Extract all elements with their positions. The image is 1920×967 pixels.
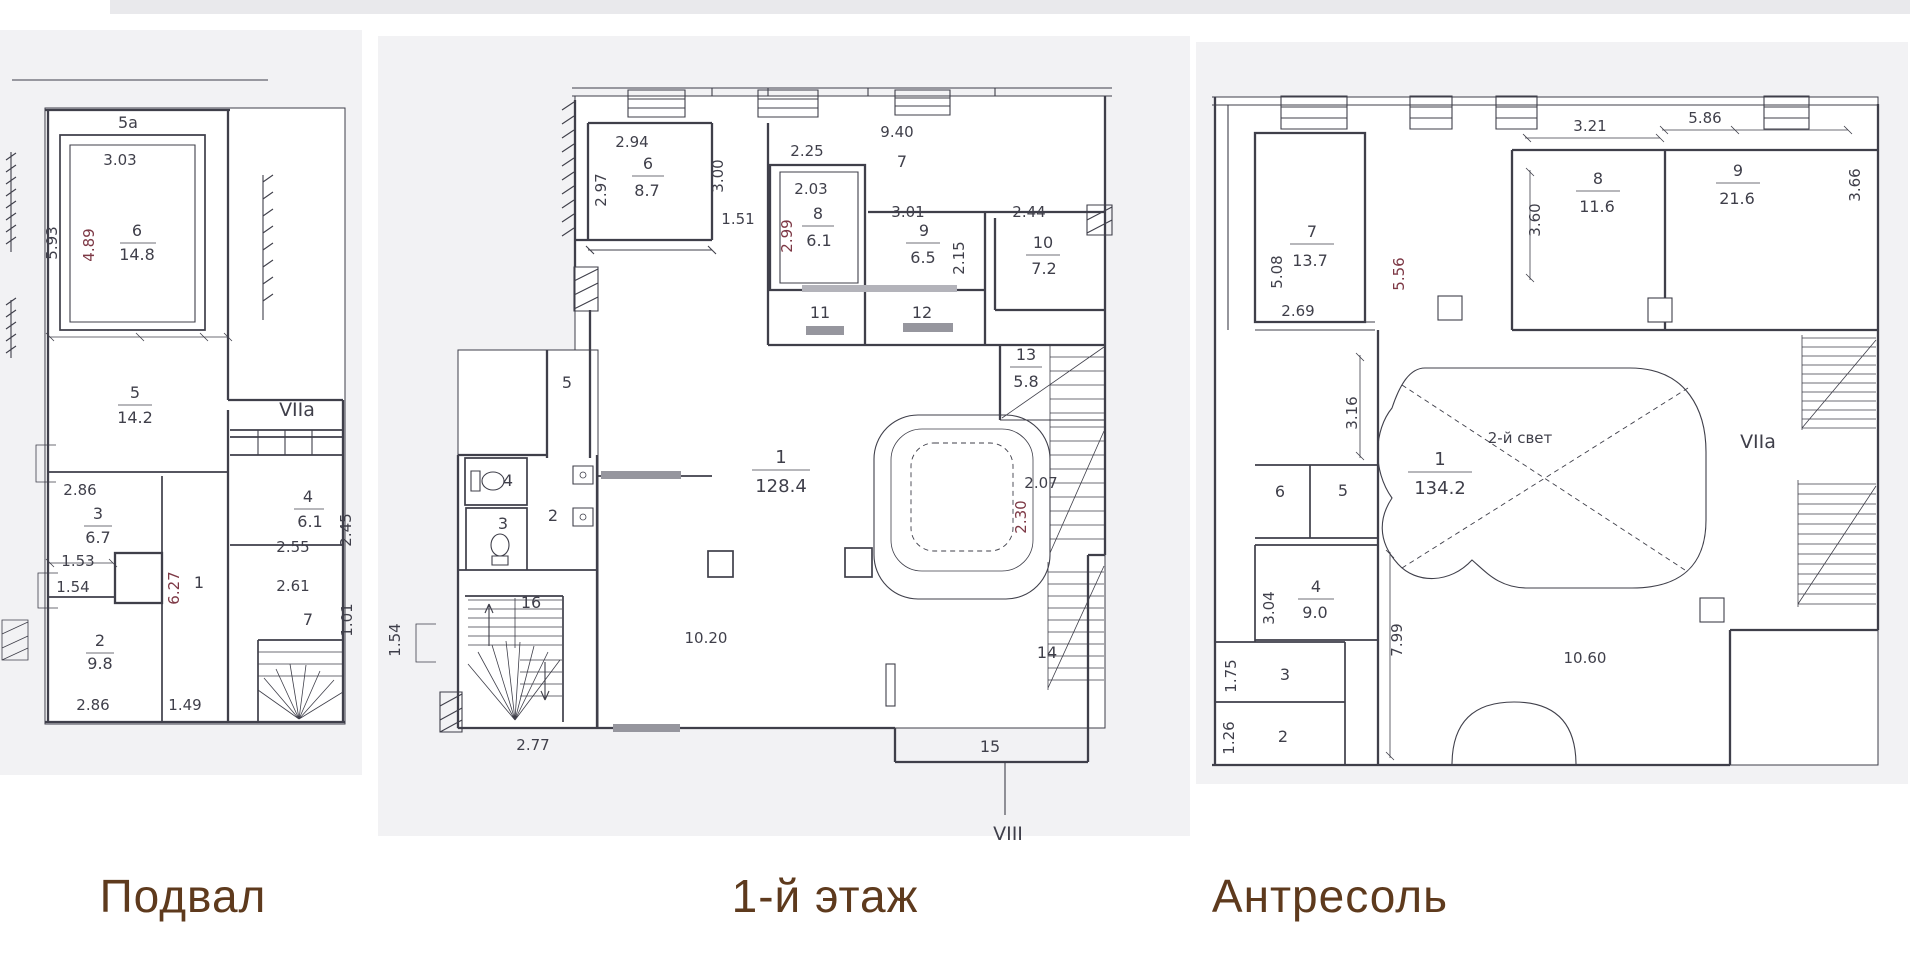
floor1-dim-151: 1.51 xyxy=(721,210,754,228)
floor1-room-2-number: 2 xyxy=(548,506,558,525)
basement-dim-627: 6.27 xyxy=(165,571,183,604)
mezzanine-dim-586: 5.86 xyxy=(1688,109,1721,127)
mezzanine-dim-508: 5.08 xyxy=(1268,255,1286,288)
floor1-room-15-number: 15 xyxy=(980,737,1000,756)
floor1-room-11-number: 11 xyxy=(810,303,830,322)
basement-dim-101: 1.01 xyxy=(338,603,356,636)
mezzanine-dim-360: 3.60 xyxy=(1526,203,1544,236)
basement-room-2-area: 9.8 xyxy=(87,654,112,673)
basement-dim-154: 1.54 xyxy=(56,578,89,596)
floor1-room-9-number: 9 xyxy=(919,221,929,240)
floor1-dim-154: 1.54 xyxy=(386,623,404,656)
mezzanine-dim-126: 1.26 xyxy=(1220,721,1238,754)
floor1-room-4-number: 4 xyxy=(503,471,513,490)
basement-room-5-area: 14.2 xyxy=(117,408,153,427)
floor1-window-sill-2 xyxy=(903,323,953,332)
basement-dim-303: 3.03 xyxy=(103,151,136,169)
mezzanine-room-4-area: 9.0 xyxy=(1302,603,1327,622)
floor1-dim-294: 2.94 xyxy=(615,133,648,151)
mezzanine-room-9-number: 9 xyxy=(1733,161,1743,180)
floor1-caption: 1-й этаж xyxy=(732,870,919,922)
floor1-column-1 xyxy=(708,551,733,577)
floor1-room-13-area: 5.8 xyxy=(1013,372,1038,391)
basement-room-5-number: 5 xyxy=(130,383,140,402)
mezzanine-dim-304: 3.04 xyxy=(1260,591,1278,624)
floor1-room-9-area: 6.5 xyxy=(910,248,935,267)
basement-block-label: 5a xyxy=(118,113,138,132)
floor1-dim-207: 2.07 xyxy=(1024,474,1057,492)
mezzanine-column-1 xyxy=(1438,296,1462,320)
mezzanine-room-7-area: 13.7 xyxy=(1292,251,1328,270)
floor1-dim-297: 2.97 xyxy=(592,173,610,206)
mezzanine-caption: Антресоль xyxy=(1212,870,1448,922)
basement-dim-153: 1.53 xyxy=(61,552,94,570)
mezzanine-dim-316: 3.16 xyxy=(1343,396,1361,429)
basement-dim-286a: 2.86 xyxy=(63,481,96,499)
mezzanine-room-6-number: 6 xyxy=(1275,482,1285,501)
mezzanine-room-1-number: 1 xyxy=(1434,449,1445,470)
basement-dim-261: 2.61 xyxy=(276,577,309,595)
mezzanine-dim-1060: 10.60 xyxy=(1564,649,1607,667)
floor1-dim-300: 3.00 xyxy=(709,159,727,192)
basement-dim-286b: 2.86 xyxy=(76,696,109,714)
mezzanine-room-8-number: 8 xyxy=(1593,169,1603,188)
floor1-section-viii: VIII xyxy=(993,823,1023,845)
floor1-door-sill-2 xyxy=(613,724,680,732)
mezzanine-room-9-area: 21.6 xyxy=(1719,189,1755,208)
floor1-room-13-number: 13 xyxy=(1016,345,1036,364)
floor1-dim-215: 2.15 xyxy=(950,241,968,274)
basement-caption: Подвал xyxy=(100,870,267,922)
floor1-dim-299: 2.99 xyxy=(778,219,796,252)
mezzanine-dim-269: 2.69 xyxy=(1281,302,1314,320)
mezzanine-dim-366: 3.66 xyxy=(1846,168,1864,201)
floor1-room-8-number: 8 xyxy=(813,204,823,223)
floor1-dim-940: 9.40 xyxy=(880,123,913,141)
mezzanine-zone-viia: VIIa xyxy=(1740,431,1776,453)
floor1-room-6-number: 6 xyxy=(643,154,653,173)
mezzanine-dim-321: 3.21 xyxy=(1573,117,1606,135)
basement-room-3-number: 3 xyxy=(93,504,103,523)
floor1-room-1-number: 1 xyxy=(775,447,786,468)
floor1-window-sill-1 xyxy=(806,326,844,335)
basement-pillar xyxy=(115,553,162,603)
floor1-wall-fill xyxy=(802,285,957,292)
basement-corridor-number: 1 xyxy=(194,573,204,592)
mezzanine-column-3 xyxy=(1700,598,1724,622)
mezzanine-room-4-number: 4 xyxy=(1311,577,1321,596)
floor1-room-16-number: 16 xyxy=(521,593,541,612)
mezzanine-room-1-area: 134.2 xyxy=(1414,478,1466,499)
basement-dim-489: 4.89 xyxy=(80,228,98,261)
floor1-room-1-area: 128.4 xyxy=(755,476,807,497)
floor1-room-3-number: 3 xyxy=(498,514,508,533)
mezzanine-room-5-number: 5 xyxy=(1338,481,1348,500)
mezzanine-room-2-number: 2 xyxy=(1278,727,1288,746)
floor1-room-10-number: 10 xyxy=(1033,233,1053,252)
floor1-floor-area-2 xyxy=(458,350,598,728)
floor1-dim-277: 2.77 xyxy=(516,736,549,754)
mezzanine-room-3-number: 3 xyxy=(1280,665,1290,684)
floorplans-scan: 5a 3.03 6 14.8 5.93 4.89 5 14.2 VIIa 2.8… xyxy=(0,0,1920,967)
floor1-dim-301: 3.01 xyxy=(891,203,924,221)
floor1-dim-244: 2.44 xyxy=(1012,203,1045,221)
floor1-door-sill-1 xyxy=(601,471,681,479)
floor1-dim-1020: 10.20 xyxy=(685,629,728,647)
basement-room-4-number: 4 xyxy=(303,487,313,506)
floor1-room-6-area: 8.7 xyxy=(634,181,659,200)
floor1-room-8-area: 6.1 xyxy=(806,231,831,250)
mezzanine-column-2 xyxy=(1648,298,1672,322)
mezzanine-plan: 7 13.7 5.08 2.69 5.56 3.21 3.60 8 11.6 5… xyxy=(1212,96,1878,765)
basement-dim-149: 1.49 xyxy=(168,696,201,714)
floor1-dim-230: 2.30 xyxy=(1012,500,1030,533)
screenshot-root: 5a 3.03 6 14.8 5.93 4.89 5 14.2 VIIa 2.8… xyxy=(0,0,1920,967)
floor1-room-5-number: 5 xyxy=(562,373,572,392)
basement-room-6-number: 6 xyxy=(132,221,142,240)
basement-room-4-area: 6.1 xyxy=(297,512,322,531)
basement-room-2-number: 2 xyxy=(95,631,105,650)
scan-edge-band xyxy=(110,0,1910,14)
basement-plan: 5a 3.03 6 14.8 5.93 4.89 5 14.2 VIIa 2.8… xyxy=(2,80,356,724)
mezzanine-dim-556: 5.56 xyxy=(1390,257,1408,290)
basement-room-3-area: 6.7 xyxy=(85,528,110,547)
basement-room-7-number: 7 xyxy=(303,610,313,629)
floor1-room-10-area: 7.2 xyxy=(1031,259,1056,278)
mezzanine-dim-799: 7.99 xyxy=(1388,623,1406,656)
floor1-hall-7-number: 7 xyxy=(897,152,907,171)
floor1-column-2 xyxy=(845,548,872,577)
floor1-dim-225: 2.25 xyxy=(790,142,823,160)
floor1-room-14-number: 14 xyxy=(1037,643,1057,662)
mezzanine-room-7-number: 7 xyxy=(1307,222,1317,241)
mezzanine-second-light-label: 2-й свет xyxy=(1488,429,1553,447)
basement-zone-viia: VIIa xyxy=(279,399,315,421)
basement-dim-255: 2.55 xyxy=(276,538,309,556)
floor1-dim-203: 2.03 xyxy=(794,180,827,198)
mezzanine-room-8-area: 11.6 xyxy=(1579,197,1615,216)
basement-room-6-area: 14.8 xyxy=(119,245,155,264)
basement-dim-245: 2.45 xyxy=(337,513,355,546)
floor1-room-12-number: 12 xyxy=(912,303,932,322)
basement-dim-593: 5.93 xyxy=(43,226,61,259)
mezzanine-dim-175: 1.75 xyxy=(1222,659,1240,692)
